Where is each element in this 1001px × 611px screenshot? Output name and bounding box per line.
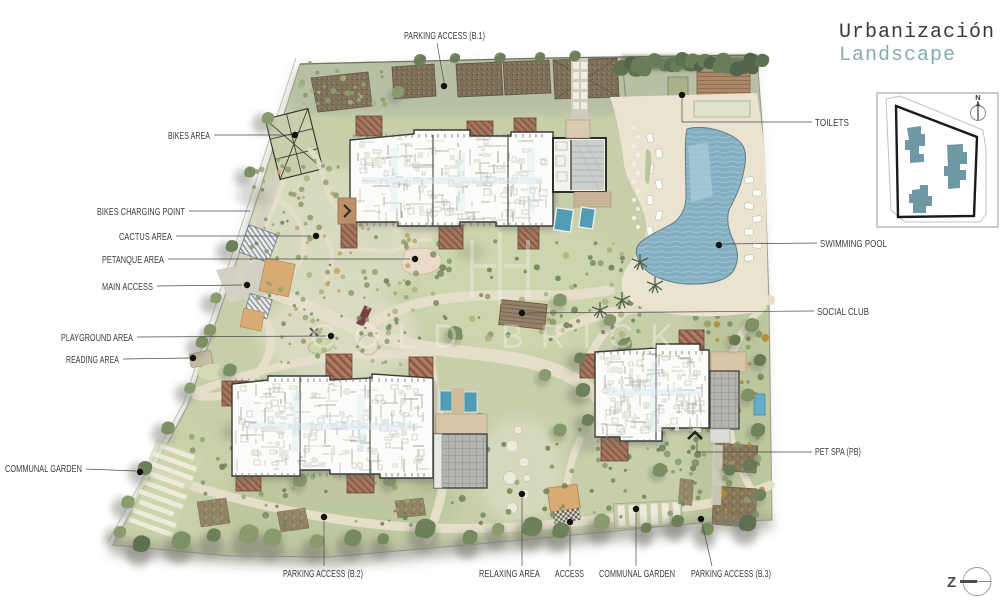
- svg-text:READING AREA: READING AREA: [66, 354, 119, 366]
- svg-text:Landscape: Landscape: [839, 44, 956, 67]
- svg-text:CACTUS AREA: CACTUS AREA: [119, 231, 172, 243]
- svg-text:COMMUNAL GARDEN: COMMUNAL GARDEN: [5, 463, 82, 475]
- svg-text:Z: Z: [947, 574, 956, 591]
- svg-text:GOLD BRICK: GOLD BRICK: [310, 318, 690, 356]
- svg-text:PETANQUE AREA: PETANQUE AREA: [102, 254, 164, 266]
- svg-text:SOCIAL CLUB: SOCIAL CLUB: [817, 306, 869, 318]
- svg-text:ACCESS: ACCESS: [555, 568, 584, 580]
- svg-text:PET SPA (PB): PET SPA (PB): [815, 446, 861, 458]
- svg-text:BIKES AREA: BIKES AREA: [168, 130, 210, 142]
- svg-text:PARKING ACCESS (B.2): PARKING ACCESS (B.2): [283, 568, 363, 580]
- svg-text:PARKING ACCESS (B.1): PARKING ACCESS (B.1): [404, 30, 485, 42]
- svg-text:PARKING ACCESS (B.3): PARKING ACCESS (B.3): [691, 568, 771, 580]
- svg-text:TOILETS: TOILETS: [815, 117, 849, 129]
- svg-text:COMMUNAL GARDEN: COMMUNAL GARDEN: [599, 568, 675, 580]
- svg-text:BIKES CHARGING POINT: BIKES CHARGING POINT: [97, 206, 185, 218]
- svg-text:RELAXING AREA: RELAXING AREA: [479, 568, 540, 580]
- svg-text:MAIN ACCESS: MAIN ACCESS: [102, 281, 153, 293]
- svg-text:SWIMMING POOL: SWIMMING POOL: [820, 238, 887, 250]
- svg-text:Urbanización: Urbanización: [839, 21, 995, 44]
- svg-text:N: N: [975, 93, 980, 102]
- svg-text:PLAYGROUND AREA: PLAYGROUND AREA: [61, 332, 133, 344]
